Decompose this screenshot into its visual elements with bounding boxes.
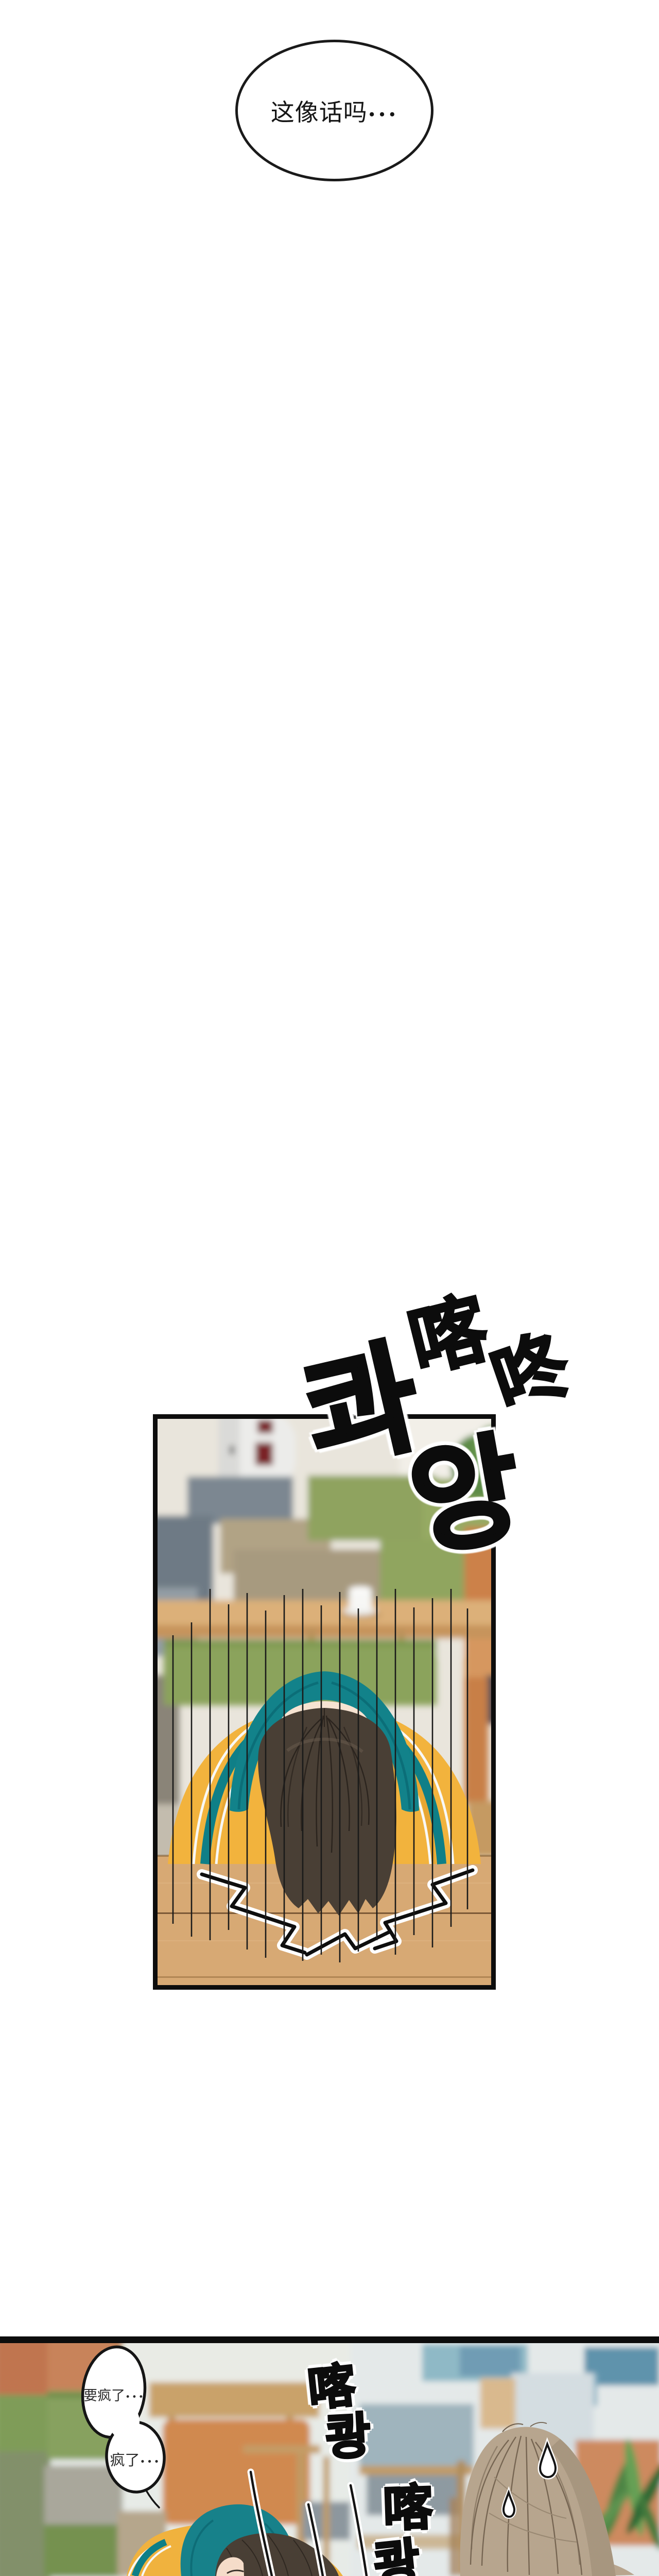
speech-text: 要疯了 — [83, 2388, 125, 2404]
ellipsis-dots: ••• — [125, 2392, 145, 2402]
speech-text: 疯了 — [110, 2451, 140, 2469]
webtoon-page: 这像话吗••• 喀 咚 콰 앙 ! — [0, 0, 659, 2576]
sfx-bottom-ka-2: 喀 — [382, 2482, 433, 2533]
sfx-chinese-ka: 喀 — [402, 1289, 495, 1383]
panel-cafe-reaction: 要疯了••• 疯了••• 喀 쾅 喀 쾅 — [0, 2336, 659, 2576]
speech-bubble-bottom-line-1: 要疯了••• — [82, 2384, 146, 2404]
sfx-bottom-ka-1: 喀 — [305, 2361, 357, 2413]
speech-text: 这像话吗 — [271, 98, 368, 126]
sfx-chinese-dong: 咚 — [483, 1325, 579, 1421]
speech-bubble-top: 这像话吗••• — [235, 40, 433, 181]
ellipsis-dots: ••• — [368, 106, 398, 123]
sfx-bottom-kwang-1: 쾅 — [324, 2411, 372, 2463]
sfx-exclamation-slash — [451, 1421, 575, 1668]
sfx-bottom-kwang-2: 쾅 — [371, 2537, 423, 2576]
speech-bubble-bottom-line-2: 疯了••• — [107, 2448, 164, 2470]
speech-bubble-top-text: 这像话吗••• — [271, 94, 398, 128]
ellipsis-dots: ••• — [140, 2456, 161, 2467]
